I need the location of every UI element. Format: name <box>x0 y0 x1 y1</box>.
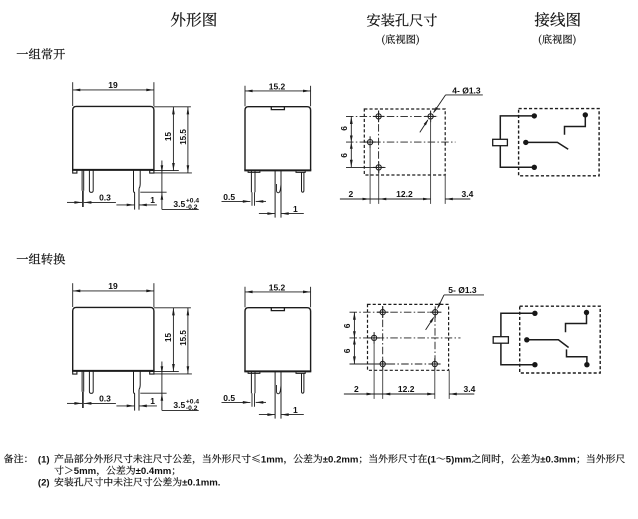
svg-text:1: 1 <box>293 405 298 415</box>
svg-text:0.3: 0.3 <box>99 394 111 404</box>
svg-text:1mm: 1mm <box>261 454 283 465</box>
svg-text:3.5: 3.5 <box>173 199 185 209</box>
svg-text:5mm: 5mm <box>74 466 96 477</box>
svg-text:3.5: 3.5 <box>173 400 185 410</box>
svg-text:2: 2 <box>354 384 359 394</box>
svg-text:6: 6 <box>342 348 352 353</box>
svg-text:(1: (1 <box>427 454 436 465</box>
svg-text:3.4: 3.4 <box>463 384 475 394</box>
svg-text:19: 19 <box>108 80 118 90</box>
svg-text:12.2: 12.2 <box>398 384 415 394</box>
svg-text:2: 2 <box>349 189 354 199</box>
svg-text:19: 19 <box>108 281 118 291</box>
svg-text:1: 1 <box>150 195 155 205</box>
svg-text:5)mm: 5)mm <box>446 454 472 465</box>
svg-text:5- Ø1.3: 5- Ø1.3 <box>448 285 477 295</box>
svg-text:1: 1 <box>293 204 298 214</box>
svg-text:15: 15 <box>164 132 173 141</box>
svg-text:±0.1mm.: ±0.1mm. <box>182 478 220 489</box>
svg-text:4- Ø1.3: 4- Ø1.3 <box>452 86 481 96</box>
svg-text:-0.2: -0.2 <box>186 405 198 412</box>
svg-text:±0.2mm: ±0.2mm <box>323 454 359 465</box>
svg-text:1: 1 <box>150 396 155 406</box>
svg-text:6: 6 <box>342 323 352 328</box>
svg-text:0.5: 0.5 <box>223 192 235 202</box>
svg-text:15.5: 15.5 <box>179 330 188 346</box>
svg-text:15.2: 15.2 <box>269 282 286 292</box>
svg-text:0.3: 0.3 <box>99 193 111 203</box>
svg-text:0.5: 0.5 <box>223 393 235 403</box>
svg-text:12.2: 12.2 <box>396 189 413 199</box>
svg-text:15.2: 15.2 <box>269 81 286 91</box>
svg-text:(2): (2) <box>38 478 50 489</box>
svg-text:15.5: 15.5 <box>179 129 188 145</box>
svg-text:±0.3mm: ±0.3mm <box>540 454 576 465</box>
svg-text:6: 6 <box>339 153 349 158</box>
svg-text:-0.2: -0.2 <box>186 204 198 211</box>
svg-text:6: 6 <box>339 126 349 131</box>
svg-text:3.4: 3.4 <box>461 189 473 199</box>
svg-text:(1): (1) <box>38 454 50 465</box>
svg-text:15: 15 <box>164 333 173 342</box>
svg-text:±0.4mm: ±0.4mm <box>136 466 172 477</box>
